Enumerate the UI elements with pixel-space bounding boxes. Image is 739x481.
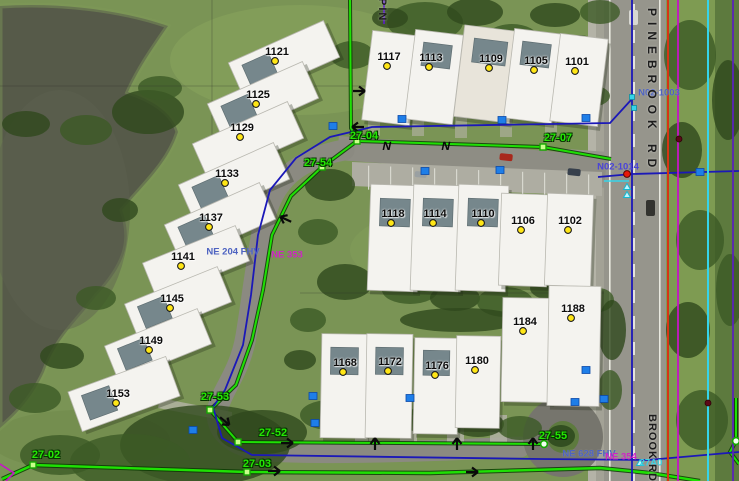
asset-label-n02-1014: N02-1014 bbox=[597, 162, 639, 173]
pipe-label-27-03: 27-03 bbox=[243, 458, 271, 470]
asset-label-ne-204-fhv: NE 204 FHV bbox=[206, 247, 259, 258]
marker-sq-green[interactable] bbox=[235, 439, 241, 445]
marker-sq-blue[interactable] bbox=[496, 167, 504, 174]
building-label-1149: 1149 bbox=[139, 335, 163, 347]
building-label-1153: 1153 bbox=[106, 388, 130, 400]
unit-point-1153[interactable] bbox=[113, 400, 120, 407]
unit-point-1172[interactable] bbox=[385, 368, 392, 375]
unit-point-1137[interactable] bbox=[206, 224, 213, 231]
unit-point-1114[interactable] bbox=[430, 220, 437, 227]
unit-point-1125[interactable] bbox=[253, 101, 260, 108]
building-label-1188: 1188 bbox=[561, 303, 585, 315]
building-label-1121: 1121 bbox=[265, 46, 289, 58]
building-label-1101: 1101 bbox=[565, 56, 589, 68]
pipe-label-27-07: 27-07 bbox=[544, 132, 572, 144]
marker-sq-blue[interactable] bbox=[498, 117, 506, 124]
building-1172 bbox=[365, 334, 416, 443]
marker-sq-cyan[interactable] bbox=[630, 95, 635, 100]
marker-sq-blue[interactable] bbox=[309, 393, 317, 400]
building-1168 bbox=[320, 334, 371, 443]
unit-point-1188[interactable] bbox=[568, 315, 575, 322]
pipe-label-27-55: 27-55 bbox=[539, 430, 567, 442]
marker-sq-blue[interactable] bbox=[571, 399, 579, 406]
street-label-partial-top: PIN bbox=[376, 0, 388, 22]
pipe-label-27-54: 27-54 bbox=[304, 157, 332, 169]
aerial-map-svg: NN bbox=[0, 0, 739, 481]
building-label-1102: 1102 bbox=[558, 215, 582, 227]
building-label-1106: 1106 bbox=[511, 215, 535, 227]
building-1176 bbox=[413, 338, 462, 439]
unit-point-1113[interactable] bbox=[426, 64, 433, 71]
building-label-1117: 1117 bbox=[377, 51, 400, 63]
unit-point-1106[interactable] bbox=[518, 227, 525, 234]
marker-circ-green[interactable] bbox=[733, 438, 739, 445]
asset-label-ne-354: NE 354 bbox=[605, 452, 637, 463]
marker-sq-blue[interactable] bbox=[582, 115, 590, 122]
marker-sq-blue[interactable] bbox=[329, 123, 337, 130]
pipe-label-27-52: 27-52 bbox=[259, 427, 287, 439]
unit-point-1129[interactable] bbox=[237, 134, 244, 141]
unit-point-1180[interactable] bbox=[472, 367, 479, 374]
building-label-1180: 1180 bbox=[465, 355, 489, 367]
pipe-label-27-53: 27-53 bbox=[201, 391, 229, 403]
unit-point-1110[interactable] bbox=[478, 220, 485, 227]
marker-sq-blue[interactable] bbox=[311, 420, 319, 427]
marker-sq-blue[interactable] bbox=[406, 395, 414, 402]
building-label-1145: 1145 bbox=[160, 293, 184, 305]
building-label-1184: 1184 bbox=[513, 316, 537, 328]
unit-point-1145[interactable] bbox=[167, 305, 174, 312]
marker-sq-green[interactable] bbox=[540, 144, 546, 150]
unit-point-1105[interactable] bbox=[531, 67, 538, 74]
unit-point-1109[interactable] bbox=[486, 65, 493, 72]
building-label-1118: 1118 bbox=[381, 208, 404, 220]
marker-sq-blue[interactable] bbox=[421, 168, 429, 175]
building-label-1114: 1114 bbox=[423, 208, 446, 220]
building-label-1110: 1110 bbox=[471, 208, 494, 220]
marker-sq-blue[interactable] bbox=[600, 396, 608, 403]
building-label-1168: 1168 bbox=[333, 357, 357, 369]
building-label-1141: 1141 bbox=[171, 251, 195, 263]
marker-sq-blue[interactable] bbox=[398, 116, 406, 123]
marker-sq-green[interactable] bbox=[207, 407, 213, 413]
marker-dot-darkred[interactable] bbox=[705, 400, 711, 406]
building-label-1125: 1125 bbox=[246, 89, 270, 101]
map-viewport[interactable]: NN 1121112511291133113711411145114911531… bbox=[0, 0, 739, 481]
unit-point-1121[interactable] bbox=[272, 58, 279, 65]
building-label-1113: 1113 bbox=[419, 52, 442, 64]
unit-point-1149[interactable] bbox=[146, 347, 153, 354]
unit-point-1101[interactable] bbox=[572, 68, 579, 75]
building-1102 bbox=[544, 193, 596, 291]
building-label-1137: 1137 bbox=[199, 212, 223, 224]
building-label-1129: 1129 bbox=[230, 122, 254, 134]
unit-point-1133[interactable] bbox=[222, 180, 229, 187]
unit-point-1102[interactable] bbox=[565, 227, 572, 234]
building-label-1105: 1105 bbox=[524, 55, 548, 67]
building-1180 bbox=[455, 336, 504, 433]
unit-point-1168[interactable] bbox=[340, 369, 347, 376]
building-label-1109: 1109 bbox=[479, 53, 503, 65]
marker-sq-green[interactable] bbox=[30, 462, 36, 468]
building-label-1176: 1176 bbox=[425, 360, 449, 372]
unit-point-1118[interactable] bbox=[388, 220, 395, 227]
unit-point-1117[interactable] bbox=[384, 63, 391, 70]
unit-point-1176[interactable] bbox=[432, 372, 439, 379]
building-label-1172: 1172 bbox=[378, 356, 402, 368]
unit-point-1141[interactable] bbox=[178, 263, 185, 270]
asset-label-ne-353: NE 353 bbox=[271, 250, 303, 261]
street-label-pinebrook-bottom: BROOK RD bbox=[646, 414, 658, 481]
pipe-label-27-04: 27-04 bbox=[350, 130, 378, 142]
marker-sq-cyan[interactable] bbox=[632, 106, 637, 111]
marker-sq-blue[interactable] bbox=[189, 427, 197, 434]
marker-sq-blue[interactable] bbox=[696, 169, 704, 176]
marker-sq-blue[interactable] bbox=[582, 367, 590, 374]
pipe-label-27-02: 27-02 bbox=[32, 449, 60, 461]
marker-dot-darkred[interactable] bbox=[676, 136, 682, 142]
street-label-pinebrook-top: PINEBROOK RD bbox=[645, 8, 659, 173]
unit-point-1184[interactable] bbox=[520, 328, 527, 335]
building-label-1133: 1133 bbox=[215, 168, 239, 180]
